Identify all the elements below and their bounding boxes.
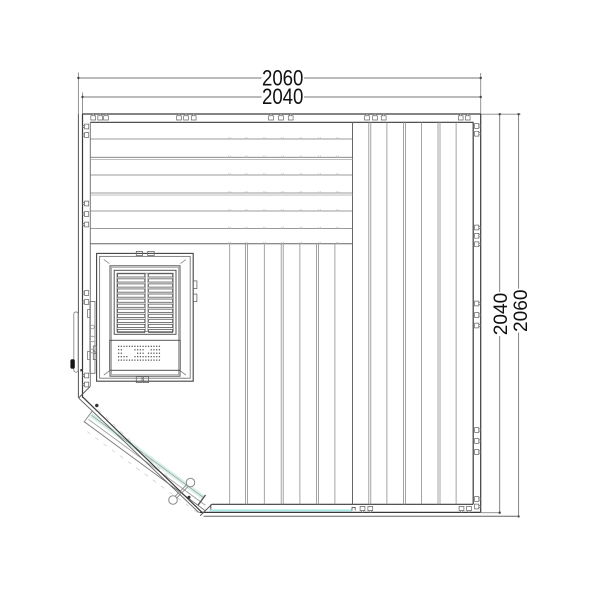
svg-text:2060: 2060 [510, 289, 532, 332]
svg-text:2040: 2040 [490, 293, 512, 336]
svg-text:2040: 2040 [262, 84, 304, 109]
